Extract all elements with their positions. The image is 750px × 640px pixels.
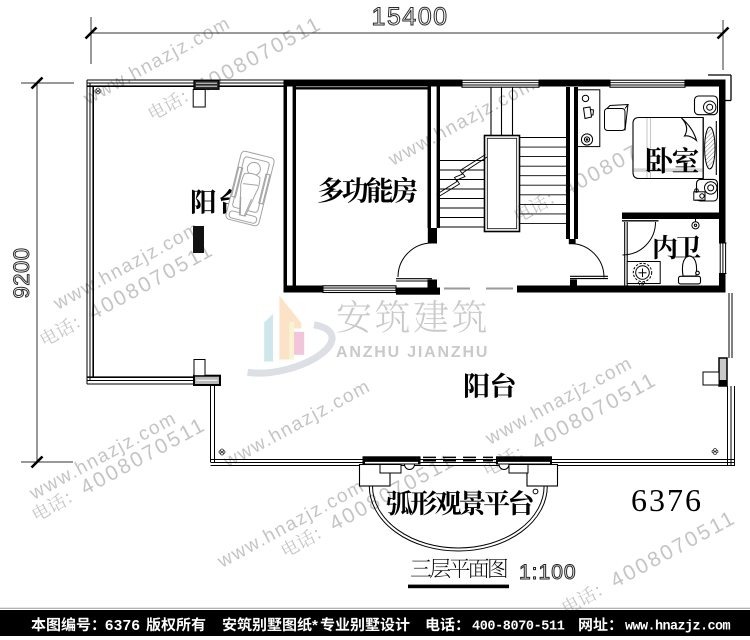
svg-text:www.hnazjz.com: www.hnazjz.com	[625, 620, 731, 635]
svg-text:9200: 9200	[9, 248, 34, 299]
svg-text:1:100: 1:100	[519, 561, 577, 584]
svg-text:*: *	[312, 617, 318, 634]
svg-text:6376: 6376	[631, 482, 703, 518]
svg-text:6376: 6376	[105, 617, 140, 634]
svg-text:ANZHU JIANZHU: ANZHU JIANZHU	[336, 344, 489, 361]
svg-text:400-8070-511: 400-8070-511	[472, 620, 565, 635]
svg-text:15400: 15400	[371, 3, 448, 31]
